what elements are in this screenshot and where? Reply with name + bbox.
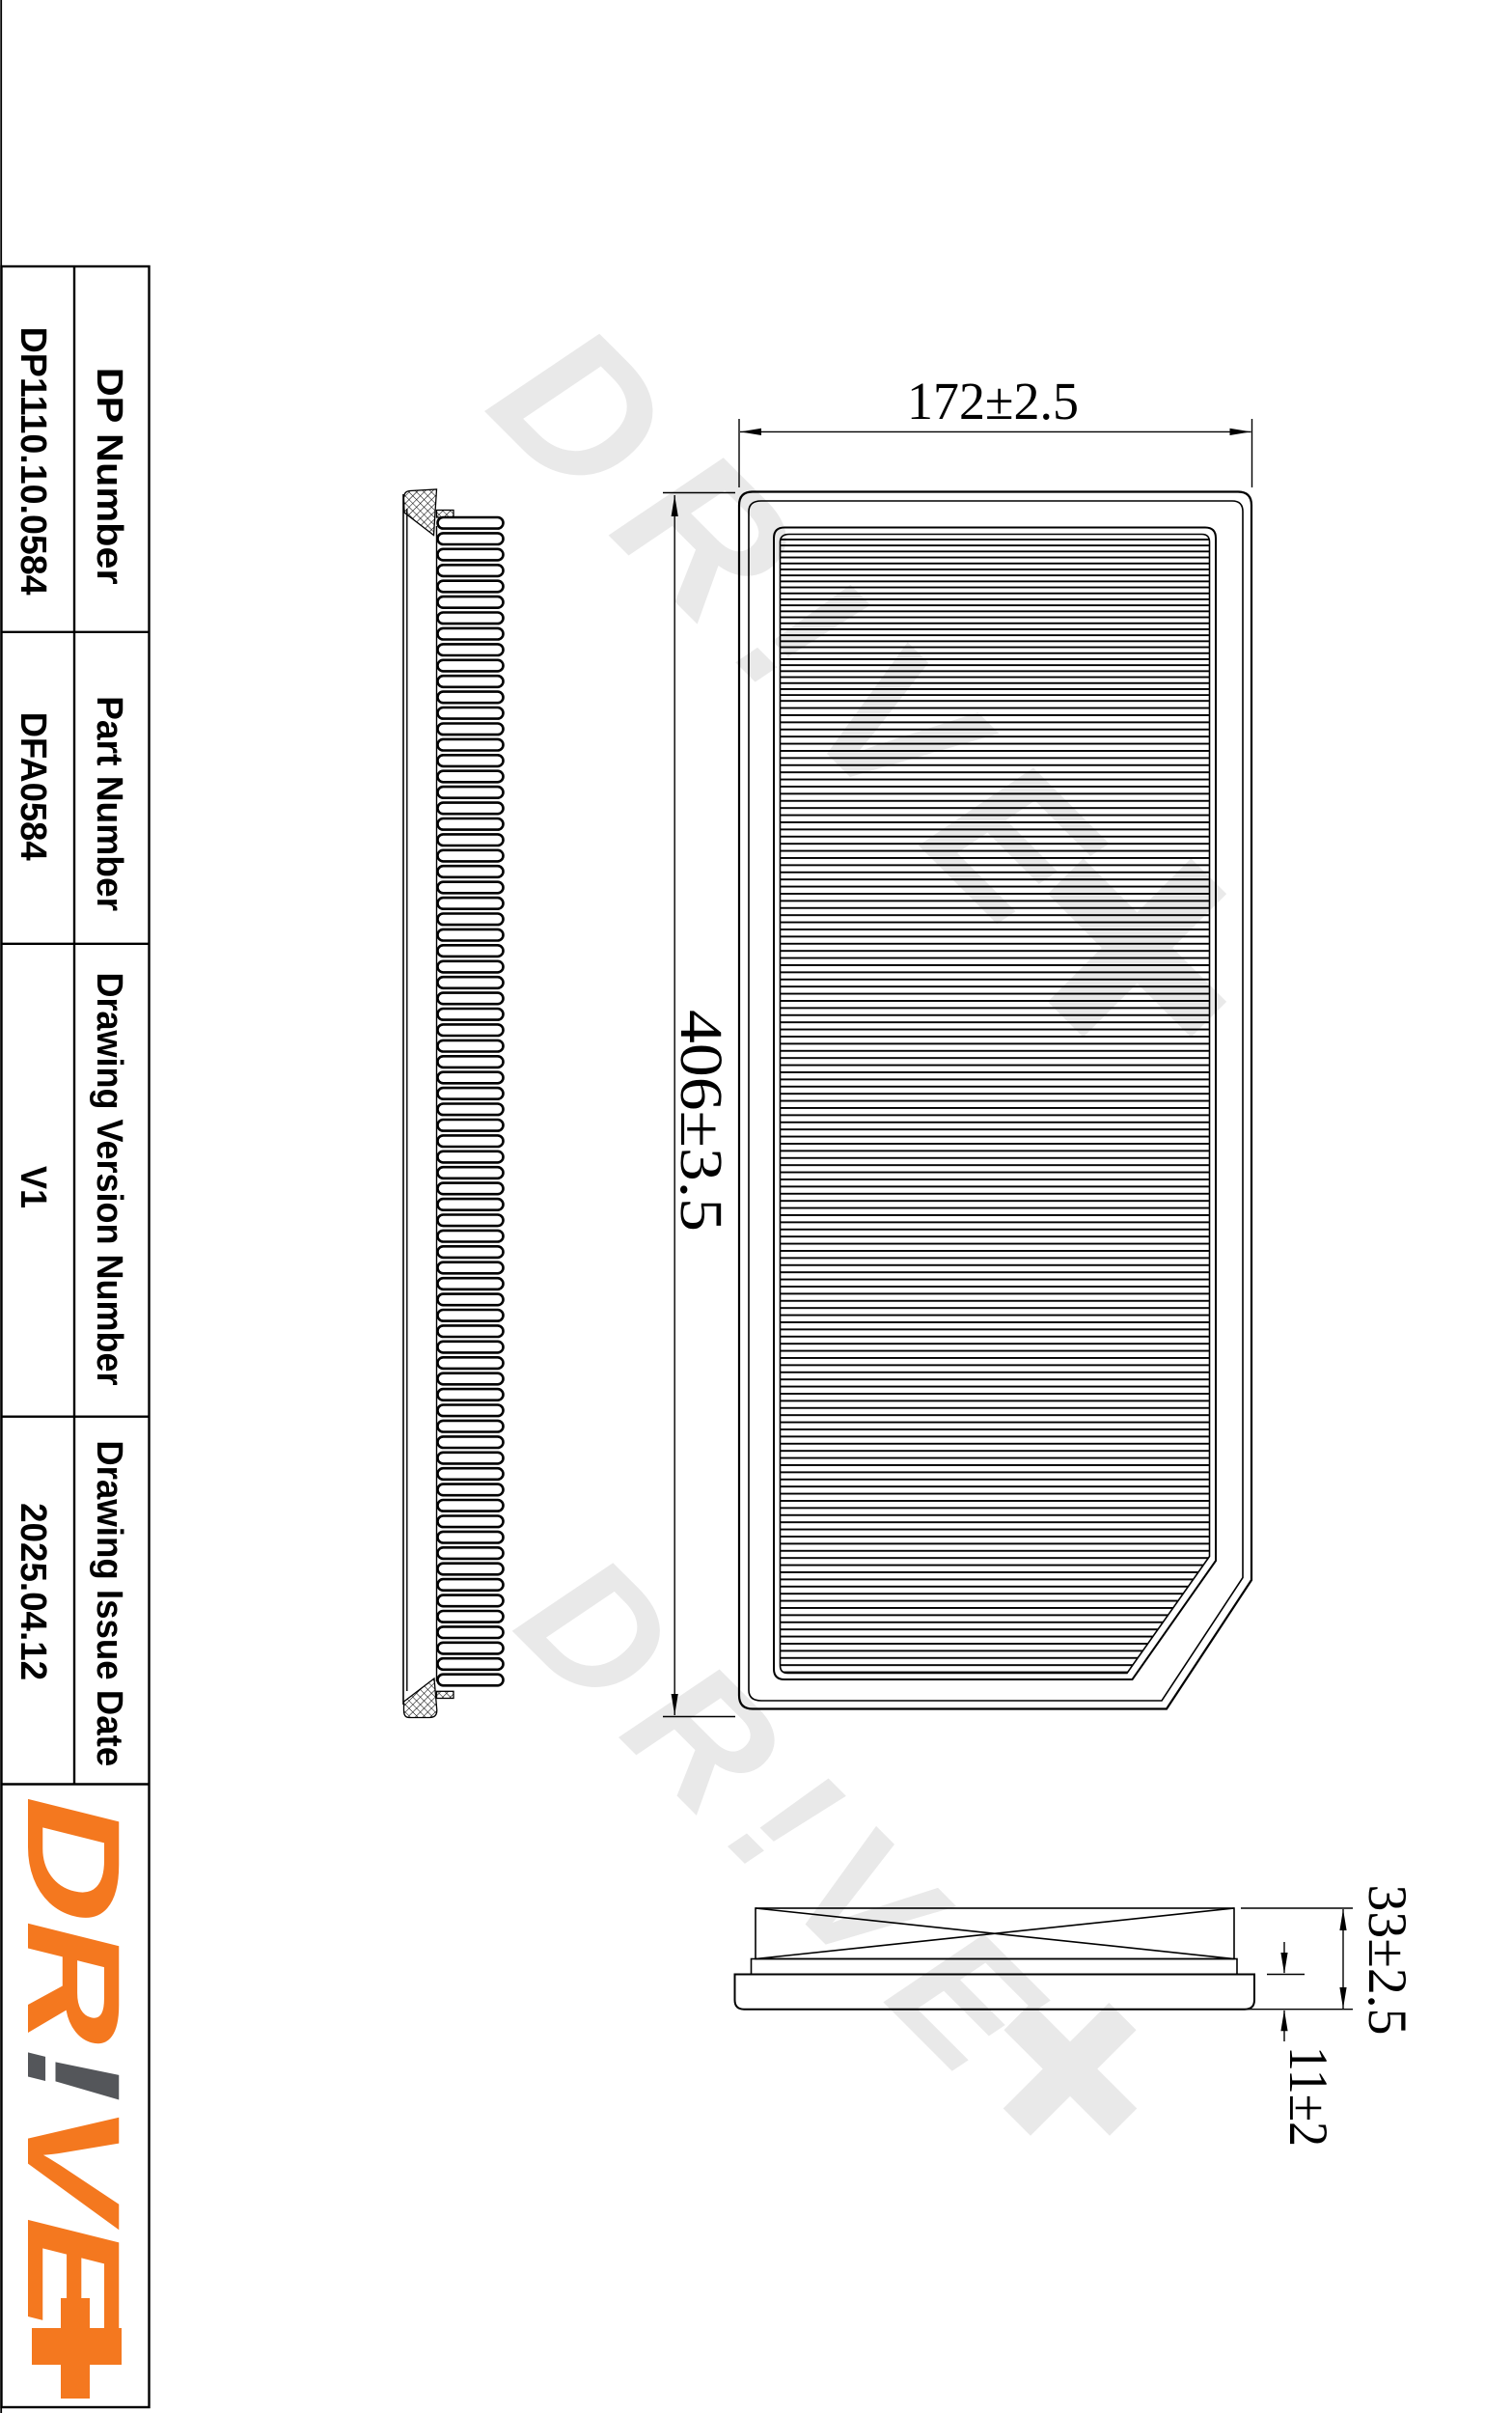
svg-text:Drawing Version Number: Drawing Version Number bbox=[89, 973, 129, 1386]
svg-text:2025.04.12: 2025.04.12 bbox=[13, 1503, 53, 1680]
svg-text:Drawing Issue Date: Drawing Issue Date bbox=[89, 1440, 129, 1766]
svg-text:DP1110.10.0584: DP1110.10.0584 bbox=[13, 327, 53, 596]
svg-text:11±2: 11±2 bbox=[1278, 2046, 1338, 2147]
svg-text:DP Number: DP Number bbox=[89, 368, 129, 585]
svg-text:Part Number: Part Number bbox=[89, 696, 129, 911]
svg-text:DFA0584: DFA0584 bbox=[13, 712, 53, 861]
svg-text:V1: V1 bbox=[13, 1166, 53, 1208]
svg-text:DR!VE: DR!VE bbox=[0, 1781, 147, 2353]
svg-text:33±2.5: 33±2.5 bbox=[1357, 1885, 1417, 2036]
svg-text:406±3.5: 406±3.5 bbox=[668, 1010, 733, 1232]
svg-text:172±2.5: 172±2.5 bbox=[907, 372, 1079, 430]
